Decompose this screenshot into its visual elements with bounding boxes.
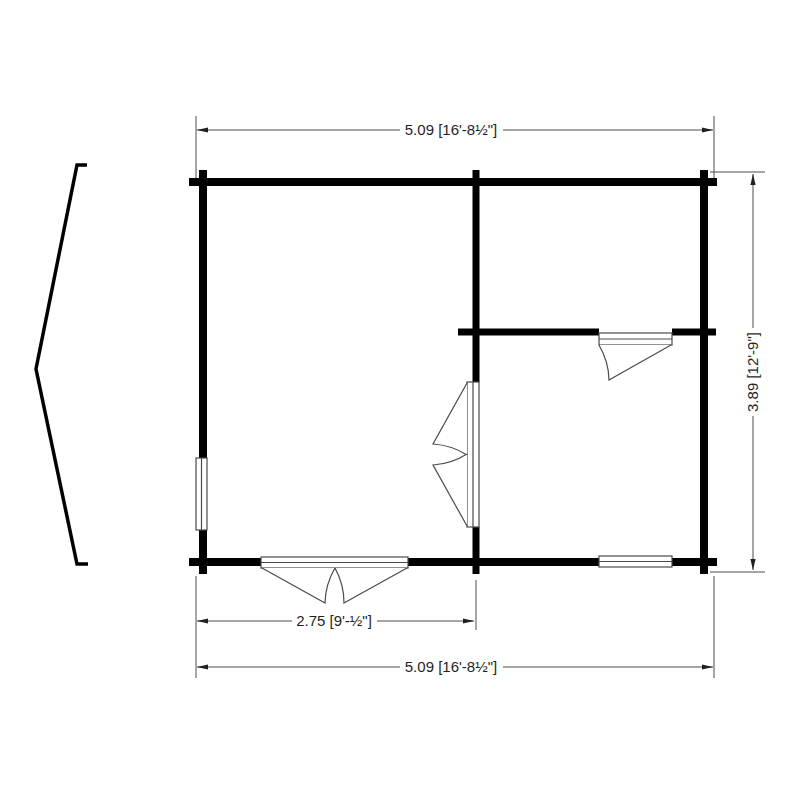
dimension-right-label: 3.89 [12'-9"] bbox=[744, 332, 761, 412]
window-bottom-right bbox=[599, 556, 672, 567]
dimension-top-label: 5.09 [16'-8½"] bbox=[405, 121, 497, 138]
canvas-background bbox=[0, 0, 800, 800]
drawing-sheet: 5.09 [16'-8½"] 3.89 [12'-9"] 2.75 [9'-½"… bbox=[0, 0, 800, 800]
window-left-wall bbox=[196, 458, 207, 530]
dimension-bottom-inner-label: 2.75 [9'-½"] bbox=[296, 612, 372, 629]
dimension-bottom-outer-label: 5.09 [16'-8½"] bbox=[405, 658, 497, 675]
floor-plan-canvas: 5.09 [16'-8½"] 3.89 [12'-9"] 2.75 [9'-½"… bbox=[0, 0, 800, 800]
